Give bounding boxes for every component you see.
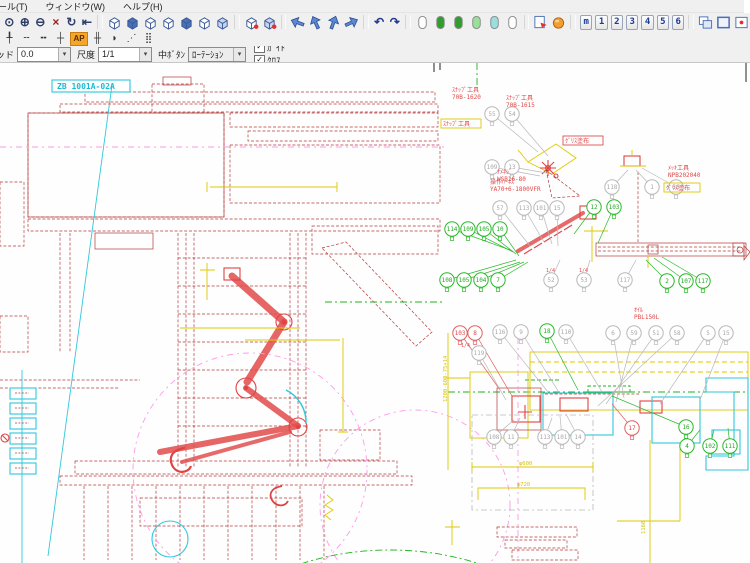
svg-text:1: 1: [650, 184, 654, 191]
cursor-cross-icon[interactable]: ╫: [90, 32, 105, 45]
fraction-mark: 1/4: [546, 268, 555, 274]
svg-text:110: 110: [561, 329, 572, 336]
point-style-3-icon[interactable]: ╍: [36, 32, 51, 45]
svg-text:8: 8: [473, 330, 477, 337]
walk-arrow-3-icon[interactable]: [325, 13, 342, 31]
main-view-dimensions: [180, 182, 460, 545]
svg-text:107: 107: [681, 278, 692, 285]
view-2-button[interactable]: 2: [611, 15, 623, 30]
svg-text:102: 102: [705, 443, 716, 450]
drawing-canvas[interactable]: ZB 1001A-02A: [0, 63, 750, 563]
svg-text:ｽﾅｯﾌﾟ工具: ｽﾅｯﾌﾟ工具: [506, 95, 533, 102]
svg-text:117: 117: [620, 277, 631, 284]
walk-arrow-4-icon[interactable]: [343, 13, 360, 31]
dimension-text: φ720: [517, 482, 530, 488]
svg-text:操作ﾊｰﾈｽ: 操作ﾊｰﾈｽ: [490, 178, 514, 186]
detail-top-right: [518, 144, 646, 242]
svg-text:ｸﾞﾘｽ塗布: ｸﾞﾘｽ塗布: [565, 137, 589, 145]
balloon-111: 111: [723, 428, 737, 457]
balloon-113: 113: [538, 418, 552, 448]
point-style-4-icon[interactable]: ┼: [53, 32, 68, 45]
view-cube-side-icon[interactable]: [160, 13, 177, 31]
view-m-button[interactable]: m: [580, 15, 592, 30]
svg-text:ｽﾅｯﾌﾟ工具: ｽﾅｯﾌﾟ工具: [443, 121, 470, 128]
control-toolbar: ッド 0.0 ▾ 尺度 1/1 ▾ 中ﾎﾞﾀﾝ ﾛｰﾃｰｼｮﾝ ▾ ✓ｶﾞｲﾄﾞ…: [0, 46, 750, 63]
svg-text:YA70+6-1800VFR: YA70+6-1800VFR: [490, 186, 541, 193]
balloon-59: 59: [616, 326, 641, 402]
menu-item-0[interactable]: ール(T): [0, 0, 30, 13]
svg-text:15: 15: [553, 205, 561, 212]
fraction-mark: 1/4: [579, 268, 588, 274]
svg-text:ｸﾞﾘｽ塗布: ｸﾞﾘｽ塗布: [666, 184, 690, 192]
main-toolbar: ⊙⊕⊖×↻⇤↶↷m123456: [0, 13, 750, 31]
svg-text:7: 7: [496, 277, 500, 284]
svg-text:ﾒｯｷ工具: ﾒｯｷ工具: [668, 165, 689, 172]
view-back-icon[interactable]: ⇤: [80, 13, 95, 31]
note: ｽﾅｯﾌﾟ工具70B-1620: [452, 87, 481, 101]
dimension-text: 1200-600-75×14: [443, 355, 449, 402]
svg-text:104: 104: [476, 277, 487, 284]
sheet-label: ZB 1001A-02A: [57, 82, 115, 91]
pill-green-1-icon[interactable]: [432, 13, 449, 31]
svg-text:52: 52: [547, 277, 555, 284]
grid-label: ッド: [0, 48, 14, 61]
balloon-110: 110: [559, 325, 602, 392]
view-6-button[interactable]: 6: [672, 15, 684, 30]
undo-icon[interactable]: ↶: [372, 13, 387, 31]
grid-value: 0.0: [18, 49, 54, 59]
svg-text:105: 105: [459, 277, 470, 284]
svg-text:117: 117: [698, 278, 709, 285]
walk-arrow-1-icon[interactable]: [289, 13, 306, 31]
boxed-note: ｸﾞﾘｽ塗布: [563, 136, 603, 145]
window-center-icon[interactable]: [733, 13, 750, 31]
balloon-117: 117: [618, 260, 636, 291]
view-cube-top-icon[interactable]: [142, 13, 159, 31]
svg-text:105: 105: [479, 226, 490, 233]
scale-label: 尺度: [77, 48, 95, 61]
svg-text:5: 5: [706, 330, 710, 337]
zoom-in-icon[interactable]: ⊕: [18, 13, 33, 31]
main-view-linkage-arms: [160, 268, 307, 505]
svg-text:15: 15: [722, 330, 730, 337]
pen-point-icon[interactable]: ◗: [107, 32, 122, 45]
zoom-cancel-icon[interactable]: ×: [49, 13, 64, 31]
svg-text:114: 114: [447, 226, 458, 233]
svg-text:108: 108: [442, 277, 453, 284]
checkbox-box[interactable]: ✓: [254, 55, 265, 63]
scale-dropdown-arrow[interactable]: ▾: [139, 48, 151, 61]
svg-text:111: 111: [725, 443, 736, 450]
svg-text:113: 113: [519, 205, 530, 212]
point-style-2-icon[interactable]: ╌: [19, 32, 34, 45]
boxed-note: ｽﾅｯﾌﾟ工具: [441, 119, 481, 128]
svg-text:113: 113: [540, 434, 551, 441]
svg-text:58: 58: [673, 330, 681, 337]
view-cube-iso-icon[interactable]: [178, 13, 195, 31]
svg-text:11: 11: [507, 434, 515, 441]
fraction-mark: 1/4: [461, 343, 470, 349]
middle-button-dropdown-arrow[interactable]: ▾: [233, 48, 245, 61]
balloon-1: 1: [636, 170, 659, 198]
pill-blank-1-icon[interactable]: [414, 13, 431, 31]
checkbox-label: ｸﾛｽ: [267, 54, 281, 63]
checkbox-ｸﾛｽ[interactable]: ✓ｸﾛｽ: [254, 54, 290, 63]
svg-text:12: 12: [590, 204, 598, 211]
ap-toggle[interactable]: AP: [70, 32, 88, 46]
walk-arrow-2-icon[interactable]: [307, 13, 324, 31]
pill-green-2-icon[interactable]: [450, 13, 467, 31]
middle-button-combobox[interactable]: ﾛｰﾃｰｼｮﾝ ▾: [188, 47, 246, 62]
boxed-note: ｸﾞﾘｽ塗布: [664, 183, 700, 192]
window-fit-icon[interactable]: [715, 13, 732, 31]
balloon-53: 53: [577, 260, 591, 291]
svg-text:119: 119: [474, 350, 485, 357]
checkbox-ｶﾞｲﾄﾞ[interactable]: ✓ｶﾞｲﾄﾞ: [254, 46, 290, 54]
svg-text:51: 51: [652, 330, 660, 337]
view-cube-back-icon[interactable]: [196, 13, 213, 31]
pill-blank-2-icon[interactable]: [504, 13, 521, 31]
toolbar-separator: [405, 15, 411, 29]
middle-button-label: 中ﾎﾞﾀﾝ: [158, 48, 185, 61]
view-4-button[interactable]: 4: [641, 15, 653, 30]
toolbar-separator: [281, 15, 287, 29]
balloon-16: 16: [612, 396, 693, 438]
balloon-102: 102: [703, 430, 717, 457]
balloon-7: 7: [491, 262, 528, 291]
svg-text:108: 108: [489, 434, 500, 441]
dot-grid-icon[interactable]: ⣿: [141, 32, 156, 45]
balloon-2: 2: [646, 260, 674, 292]
svg-text:101: 101: [536, 205, 547, 212]
svg-text:53: 53: [580, 277, 588, 284]
redo-icon[interactable]: ↷: [387, 13, 402, 31]
svg-text:ﾅﾒﾈｼﾞ: ﾅﾒﾈｼﾞ: [497, 169, 512, 176]
pill-green-3-icon[interactable]: [468, 13, 485, 31]
balloon-54: 54: [505, 107, 548, 156]
middle-button-value: ﾛｰﾃｰｼｮﾝ: [189, 48, 227, 61]
balloon-17: 17: [612, 404, 639, 439]
menu-item-1[interactable]: ウィンドウ(W): [44, 0, 108, 13]
checkbox-box[interactable]: ✓: [254, 46, 265, 53]
dimension-text: 1160: [641, 521, 647, 534]
svg-text:ｽﾅｯﾌﾟ工具: ｽﾅｯﾌﾟ工具: [452, 87, 479, 94]
toolbar-separator: [688, 15, 694, 29]
window-pan-icon[interactable]: [697, 13, 714, 31]
view-1-button[interactable]: 1: [595, 15, 607, 30]
view-cube-points-icon[interactable]: [261, 13, 278, 31]
svg-text:18: 18: [543, 328, 551, 335]
snap-ten-icon[interactable]: ⋰: [124, 32, 139, 45]
note: ｵｲﾙPBL150L: [634, 307, 660, 321]
view-5-button[interactable]: 5: [657, 15, 669, 30]
view-cube-shaded-icon[interactable]: [124, 13, 141, 31]
svg-text:10: 10: [496, 226, 504, 233]
grid-dropdown-arrow[interactable]: ▾: [58, 48, 70, 61]
balloon-4: 4: [680, 430, 700, 457]
zoom-all-icon[interactable]: ⊙: [2, 13, 17, 31]
scale-value: 1/1: [99, 49, 135, 59]
svg-text:NPB202040: NPB202040: [668, 172, 701, 179]
svg-text:70B-1620: 70B-1620: [452, 94, 481, 101]
view-cube-free-icon[interactable]: [214, 13, 231, 31]
view-3-button[interactable]: 3: [626, 15, 638, 30]
svg-text:6: 6: [611, 330, 615, 337]
svg-text:103: 103: [609, 204, 620, 211]
toolbar-separator: [363, 15, 369, 29]
svg-text:2: 2: [665, 278, 669, 285]
view-rotate-icon[interactable]: ↻: [64, 13, 79, 31]
balloon-101: 101: [555, 416, 569, 448]
point-style-toolbar: ╀╌╍┼AP╫◗⋰⣿: [0, 31, 750, 46]
svg-text:ｵｲﾙ: ｵｲﾙ: [634, 307, 643, 314]
balloon-52: 52: [544, 260, 560, 291]
dimension-text: φ600: [519, 461, 532, 467]
svg-text:55: 55: [488, 111, 496, 118]
lamp-icon[interactable]: [550, 13, 567, 31]
menu-bar: ール(T)ウィンドウ(W)ヘルプ(H): [0, 0, 744, 13]
svg-text:116: 116: [495, 329, 506, 336]
svg-text:16: 16: [682, 424, 690, 431]
svg-text:109: 109: [463, 226, 474, 233]
svg-text:70B-1615: 70B-1615: [506, 102, 535, 109]
toolbar-separator: [234, 15, 240, 29]
point-style-1-icon[interactable]: ╀: [2, 32, 17, 45]
view-cube-point-icon[interactable]: [243, 13, 260, 31]
detail-middle-right: [518, 206, 750, 268]
svg-text:PBL150L: PBL150L: [634, 314, 660, 321]
view-cube-front-icon[interactable]: [106, 13, 123, 31]
balloon-14: 14: [566, 414, 585, 448]
main-view-structure: [0, 77, 440, 560]
zoom-out-icon[interactable]: ⊖: [33, 13, 48, 31]
balloon-118: 118: [605, 170, 628, 198]
svg-text:54: 54: [508, 111, 516, 118]
note: ｽﾅｯﾌﾟ工具70B-1615: [506, 95, 535, 109]
svg-text:4: 4: [685, 443, 689, 450]
menu-item-2[interactable]: ヘルプ(H): [121, 0, 165, 13]
main-view-cyan-details: ZB 1001A-02A: [1, 80, 306, 563]
svg-text:59: 59: [630, 330, 638, 337]
svg-text:118: 118: [607, 184, 618, 191]
detail-bottom-right: [445, 333, 748, 563]
svg-text:103: 103: [455, 330, 466, 337]
main-view-sheet-marks: [434, 63, 746, 82]
balloon-11: 11: [504, 418, 520, 448]
toolbar-separator: [570, 15, 576, 29]
svg-text:14: 14: [574, 434, 582, 441]
svg-text:57: 57: [496, 205, 504, 212]
checkbox-label: ｶﾞｲﾄﾞ: [267, 46, 290, 54]
pill-cyan-icon[interactable]: [486, 13, 503, 31]
toolbar-separator: [524, 15, 530, 29]
svg-text:9: 9: [519, 329, 523, 336]
note: ﾒｯｷ工具NPB202040: [668, 165, 701, 179]
plot-page-icon[interactable]: [532, 13, 549, 31]
svg-text:101: 101: [557, 434, 568, 441]
svg-text:17: 17: [628, 425, 636, 432]
toolbar-separator: [97, 15, 103, 29]
balloon-107: 107: [654, 258, 693, 292]
grid-combobox[interactable]: 0.0 ▾: [17, 47, 71, 62]
scale-combobox[interactable]: 1/1 ▾: [98, 47, 152, 62]
